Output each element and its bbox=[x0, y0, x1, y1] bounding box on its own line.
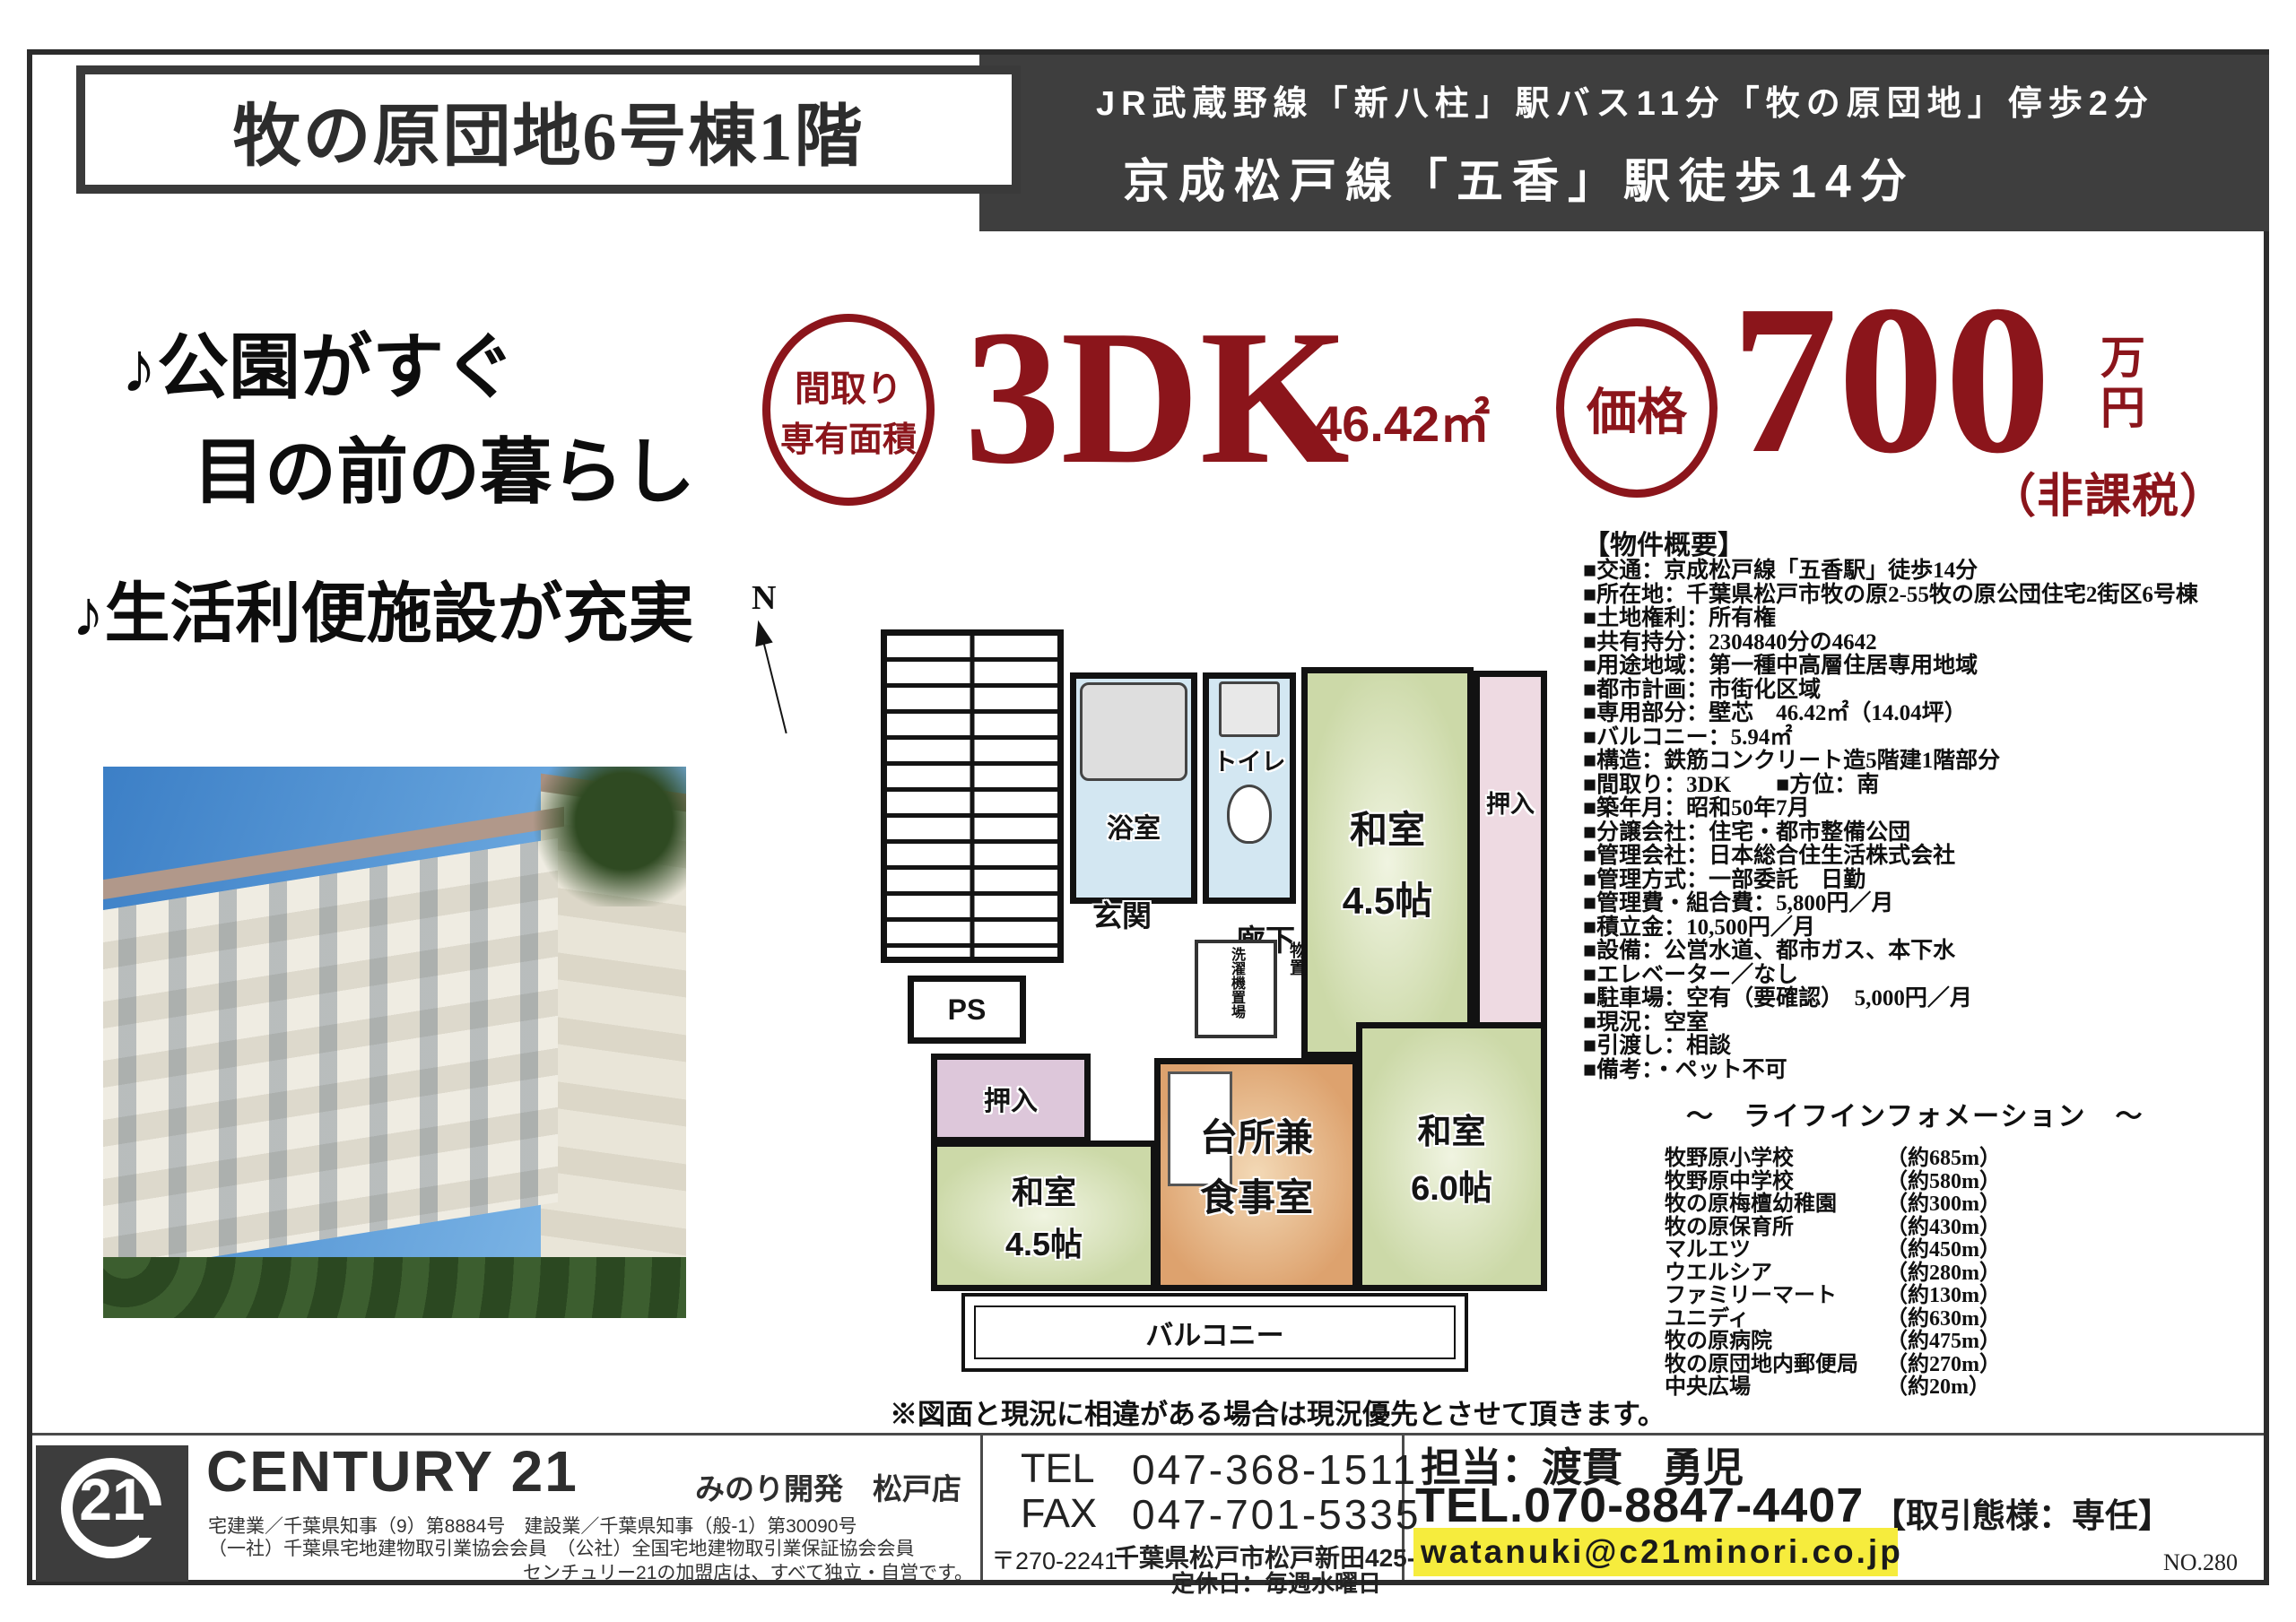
life-info-row: 牧野原小学校（約685m） bbox=[1665, 1148, 1858, 1171]
entrance-label: 玄関 bbox=[1092, 892, 1152, 935]
transaction-type: 【取引態様：専任】 bbox=[1873, 1488, 2171, 1537]
washitsu-sw-name: 和室 bbox=[1012, 1167, 1076, 1213]
room-kitchen-dining: 台所兼 食事室 bbox=[1154, 1058, 1359, 1291]
life-info-row: 牧の原病院（約475m） bbox=[1665, 1331, 1858, 1354]
staircase-divider bbox=[970, 636, 975, 957]
catchphrase-line-2: 目の前の暮らし bbox=[193, 414, 695, 518]
overview-item: ■専用部分：壁芯 46.42㎡（14.04坪） bbox=[1583, 702, 2198, 726]
life-info-row: 牧の原梅檀幼稚園（約300m） bbox=[1665, 1193, 1858, 1217]
store-name: みのり開発 松戸店 bbox=[695, 1465, 961, 1508]
overview-item: ■都市計画：市街化区域 bbox=[1583, 679, 2198, 703]
washitsu-se-name: 和室 bbox=[1417, 1104, 1485, 1153]
life-info-row: 牧野原中学校（約580m） bbox=[1665, 1171, 1858, 1194]
washitsu-ne-name: 和室 bbox=[1350, 800, 1425, 854]
century21-logo: 21 bbox=[36, 1445, 188, 1582]
century21-mark: 21 bbox=[36, 1465, 188, 1533]
closed-days: 定休日：毎週水曜日 bbox=[1171, 1566, 1381, 1599]
overview-item: ■引渡し：相談 bbox=[1583, 1035, 2198, 1059]
washitsu-ne-size: 4.5帖 bbox=[1343, 871, 1432, 925]
toilet-icon bbox=[1227, 785, 1272, 844]
overview-item: ■積立金：10,500円／月 bbox=[1583, 916, 2198, 941]
laundry-label: 洗濯機置場 bbox=[1225, 947, 1247, 1035]
room-washitsu-sw: 和室 4.5帖 bbox=[931, 1141, 1157, 1291]
price-value: 700 bbox=[1731, 273, 2051, 487]
layout-badge-line-1: 間取り bbox=[795, 360, 902, 412]
overview-item: ■交通：京成松戸線「五香駅」徒歩14分 bbox=[1583, 559, 2198, 584]
floor-plan-note: ※図面と現況に相違がある場合は現況優先とさせて頂きます。 bbox=[890, 1392, 1665, 1432]
license-line-2: （一社）千葉県宅地建物取引業協会会員 （公社）全国宅地建物取引業保証協会会員 bbox=[208, 1534, 915, 1561]
overview-list: ■交通：京成松戸線「五香駅」徒歩14分 ■所在地：千葉県松戸市牧の原2-55牧の… bbox=[1583, 559, 2198, 1082]
postal-code: 〒270-2241 bbox=[991, 1541, 1118, 1576]
email-address: watanuki@c21minori.co.jp bbox=[1413, 1533, 1903, 1571]
life-info-row: 牧の原保育所（約430m） bbox=[1665, 1217, 1858, 1240]
email-highlight: watanuki@c21minori.co.jp bbox=[1413, 1528, 1898, 1576]
property-title: 牧の原団地6号棟1階 bbox=[233, 81, 865, 179]
brand-name: CENTURY 21 bbox=[206, 1438, 578, 1505]
closet-ne-label: 押入 bbox=[1480, 785, 1541, 820]
price-badge-label: 価格 bbox=[1587, 372, 1687, 445]
compass-label: N bbox=[752, 578, 776, 618]
pipe-space-box: PS bbox=[908, 976, 1026, 1044]
overview-item: ■バルコニー：5.94㎡ bbox=[1583, 726, 2198, 750]
laundry-box: 洗濯機置場 bbox=[1195, 940, 1277, 1038]
overview-item: ■管理会社：日本総合住生活株式会社 bbox=[1583, 845, 2198, 869]
storage-label: 物置 bbox=[1284, 941, 1309, 976]
closet-west: 押入 bbox=[931, 1054, 1091, 1143]
toilet-label: トイレ bbox=[1209, 742, 1290, 777]
overview-item: ■共有持分：2304840分の4642 bbox=[1583, 631, 2198, 655]
tel-label: TEL bbox=[1021, 1445, 1095, 1492]
sink-icon bbox=[1219, 681, 1280, 737]
overview-item: ■現況：空室 bbox=[1583, 1011, 2198, 1036]
fax-number: 047-701-5335 bbox=[1132, 1490, 1421, 1539]
overview-item: ■分譲会社：住宅・都市整備公団 bbox=[1583, 821, 2198, 846]
room-bathroom: 浴室 bbox=[1070, 672, 1197, 904]
property-title-box: 牧の原団地6号棟1階 bbox=[76, 65, 1021, 194]
pipe-space-label: PS bbox=[948, 993, 987, 1027]
overview-item: ■用途地域：第一種中高層住居専用地域 bbox=[1583, 655, 2198, 679]
life-info-heading: ～ ライフインフォメーション ～ bbox=[1686, 1094, 2144, 1133]
overview-item: ■土地権利：所有権 bbox=[1583, 607, 2198, 631]
life-info-row: 中央広場（約20m） bbox=[1665, 1376, 1858, 1400]
life-info-row: ファミリーマート（約130m） bbox=[1665, 1285, 1858, 1308]
catchphrase-line-3: ♪生活利便施設が充実 bbox=[72, 560, 694, 655]
layout-badge-line-2: 専有面積 bbox=[780, 412, 917, 461]
fax-label: FAX bbox=[1021, 1490, 1097, 1537]
flyer-number: NO.280 bbox=[2163, 1549, 2238, 1576]
life-info-row: ユニディ（約630m） bbox=[1665, 1308, 1858, 1331]
life-info-row: ウエルシア（約280m） bbox=[1665, 1262, 1858, 1286]
price-badge: 価格 bbox=[1556, 318, 1718, 498]
photo-tree bbox=[530, 767, 686, 906]
access-line-1: JR武蔵野線「新八柱」駅バス11分「牧の原団地」停歩2分 bbox=[1096, 75, 2154, 125]
price-unit: 万円 bbox=[2097, 334, 2142, 434]
room-washitsu-se: 和室 6.0帖 bbox=[1356, 1022, 1547, 1291]
overview-item: ■間取り：3DK ■方位：南 bbox=[1583, 774, 2198, 798]
room-toilet: トイレ bbox=[1203, 672, 1296, 904]
bathtub-icon bbox=[1080, 682, 1187, 781]
overview-item: ■駐車場：空有（要確認） 5,000円／月 bbox=[1583, 987, 2198, 1011]
photo-hedge bbox=[103, 1257, 686, 1318]
catchphrase-line-1: ♪公園がすぐ bbox=[121, 309, 516, 413]
overview-heading: 【物件概要】 bbox=[1583, 523, 1744, 562]
tel-number: 047-368-1511 bbox=[1132, 1445, 1418, 1494]
overview-item: ■エレベーター／なし bbox=[1583, 964, 2198, 988]
access-line-2: 京成松戸線「五香」駅徒歩14分 bbox=[1123, 143, 1916, 211]
franchise-note: センチュリー21の加盟店は、すべて独立・自営です。 bbox=[395, 1558, 973, 1585]
bathroom-label: 浴室 bbox=[1076, 806, 1191, 846]
life-info-row: 牧の原団地内郵便局（約270m） bbox=[1665, 1354, 1858, 1377]
footer-divider-1 bbox=[980, 1435, 983, 1580]
overview-item: ■管理方式：一部委託 日勤 bbox=[1583, 869, 2198, 893]
overview-item: ■築年月：昭和50年7月 bbox=[1583, 797, 2198, 821]
price-tax-note: （非課税） bbox=[1989, 473, 2227, 520]
footer-divider-top bbox=[32, 1433, 2264, 1436]
layout-badge: 間取り 専有面積 bbox=[762, 314, 935, 506]
balcony-label: バルコニー bbox=[1145, 1313, 1283, 1353]
layout-value: 3DK bbox=[964, 300, 1350, 493]
closet-west-label: 押入 bbox=[984, 1079, 1038, 1118]
washitsu-sw-size: 4.5帖 bbox=[1005, 1219, 1083, 1265]
overview-item: ■所在地：千葉県松戸市牧の原2-55牧の原公団住宅2街区6号棟 bbox=[1583, 584, 2198, 608]
area-value: 46.42㎡ bbox=[1314, 399, 1490, 449]
room-washitsu-ne: 和室 4.5帖 bbox=[1301, 667, 1474, 1058]
washitsu-se-size: 6.0帖 bbox=[1411, 1160, 1492, 1210]
life-info-list: 牧野原小学校（約685m） 牧野原中学校（約580m） 牧の原梅檀幼稚園（約30… bbox=[1665, 1148, 1858, 1400]
agent-tel: TEL.070-8847-4407 bbox=[1415, 1478, 1864, 1533]
overview-item: ■備考：・ペット不可 bbox=[1583, 1059, 2198, 1083]
closet-ne: 押入 bbox=[1474, 671, 1547, 1054]
staircase bbox=[881, 629, 1064, 963]
kitchen-label: 台所兼 食事室 bbox=[1161, 1107, 1352, 1227]
overview-item: ■構造：鉄筋コンクリート造5階建1階部分 bbox=[1583, 750, 2198, 774]
overview-item: ■管理費・組合費：5,800円／月 bbox=[1583, 892, 2198, 916]
overview-item: ■設備：公営水道、都市ガス、本下水 bbox=[1583, 940, 2198, 964]
balcony: バルコニー bbox=[961, 1293, 1468, 1372]
building-photo bbox=[103, 767, 686, 1318]
life-info-row: マルエツ（約450m） bbox=[1665, 1239, 1858, 1262]
